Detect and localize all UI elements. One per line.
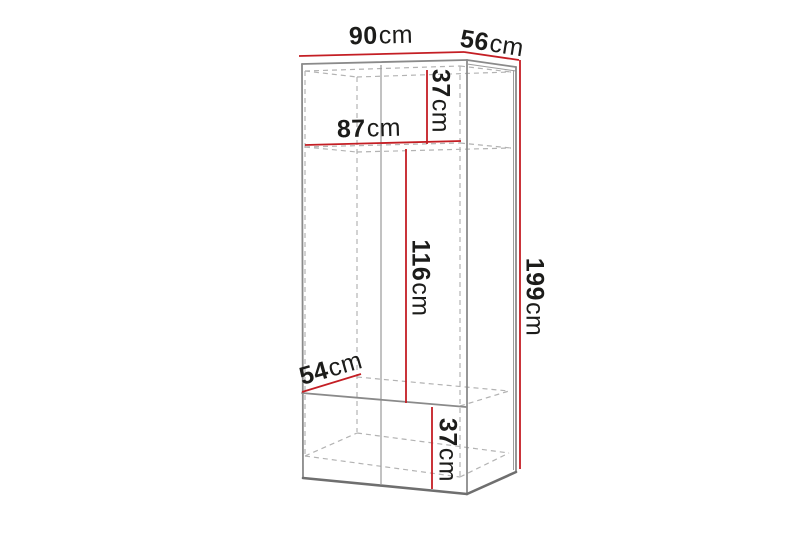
- interior-top-left-depth-edge: [305, 71, 357, 77]
- dimension-value: 87: [337, 115, 367, 144]
- dimension-value: 116: [407, 239, 435, 281]
- dimension-label-top-compartment-height: 37cm: [428, 69, 453, 133]
- dimension-value: 90: [349, 22, 379, 51]
- dimension-line-overall-width: [299, 52, 464, 56]
- dimension-label-interior-width: 87cm: [337, 116, 402, 143]
- dimension-value: 56: [458, 25, 491, 57]
- shelf-left-depth-edge: [305, 147, 357, 152]
- dimension-value: 199: [521, 258, 549, 301]
- dimension-unit: cm: [366, 114, 401, 143]
- side-top-edge: [467, 60, 516, 67]
- bottom-divider-front-edge: [302, 393, 466, 407]
- dimension-value: 37: [434, 418, 462, 447]
- dimension-label-hanging-space-height: 116cm: [408, 239, 433, 316]
- dimension-unit: cm: [407, 282, 435, 316]
- side-bottom-edge: [467, 472, 516, 494]
- dimension-unit: cm: [488, 29, 526, 62]
- dimension-unit: cm: [521, 302, 549, 336]
- interior-bottom-left-depth-edge: [305, 433, 357, 456]
- divider-back-edge: [357, 377, 509, 391]
- wardrobe-dimension-diagram: 90cm 56cm 37cm 87cm 116cm 199cm 54cm 37c…: [0, 0, 800, 533]
- dimension-unit: cm: [378, 21, 413, 50]
- front-top-edge: [302, 60, 467, 64]
- dimension-label-bottom-compartment-height: 37cm: [435, 418, 460, 482]
- dimension-label-overall-width: 90cm: [349, 23, 414, 50]
- dimension-label-overall-height: 199cm: [522, 258, 547, 337]
- front-left-edge: [302, 64, 303, 478]
- dimension-unit: cm: [434, 448, 462, 482]
- shelf-back-edge: [357, 148, 511, 152]
- dimension-value: 37: [427, 69, 455, 98]
- wardrobe-line-drawing: [0, 0, 800, 533]
- dimension-unit: cm: [427, 99, 455, 133]
